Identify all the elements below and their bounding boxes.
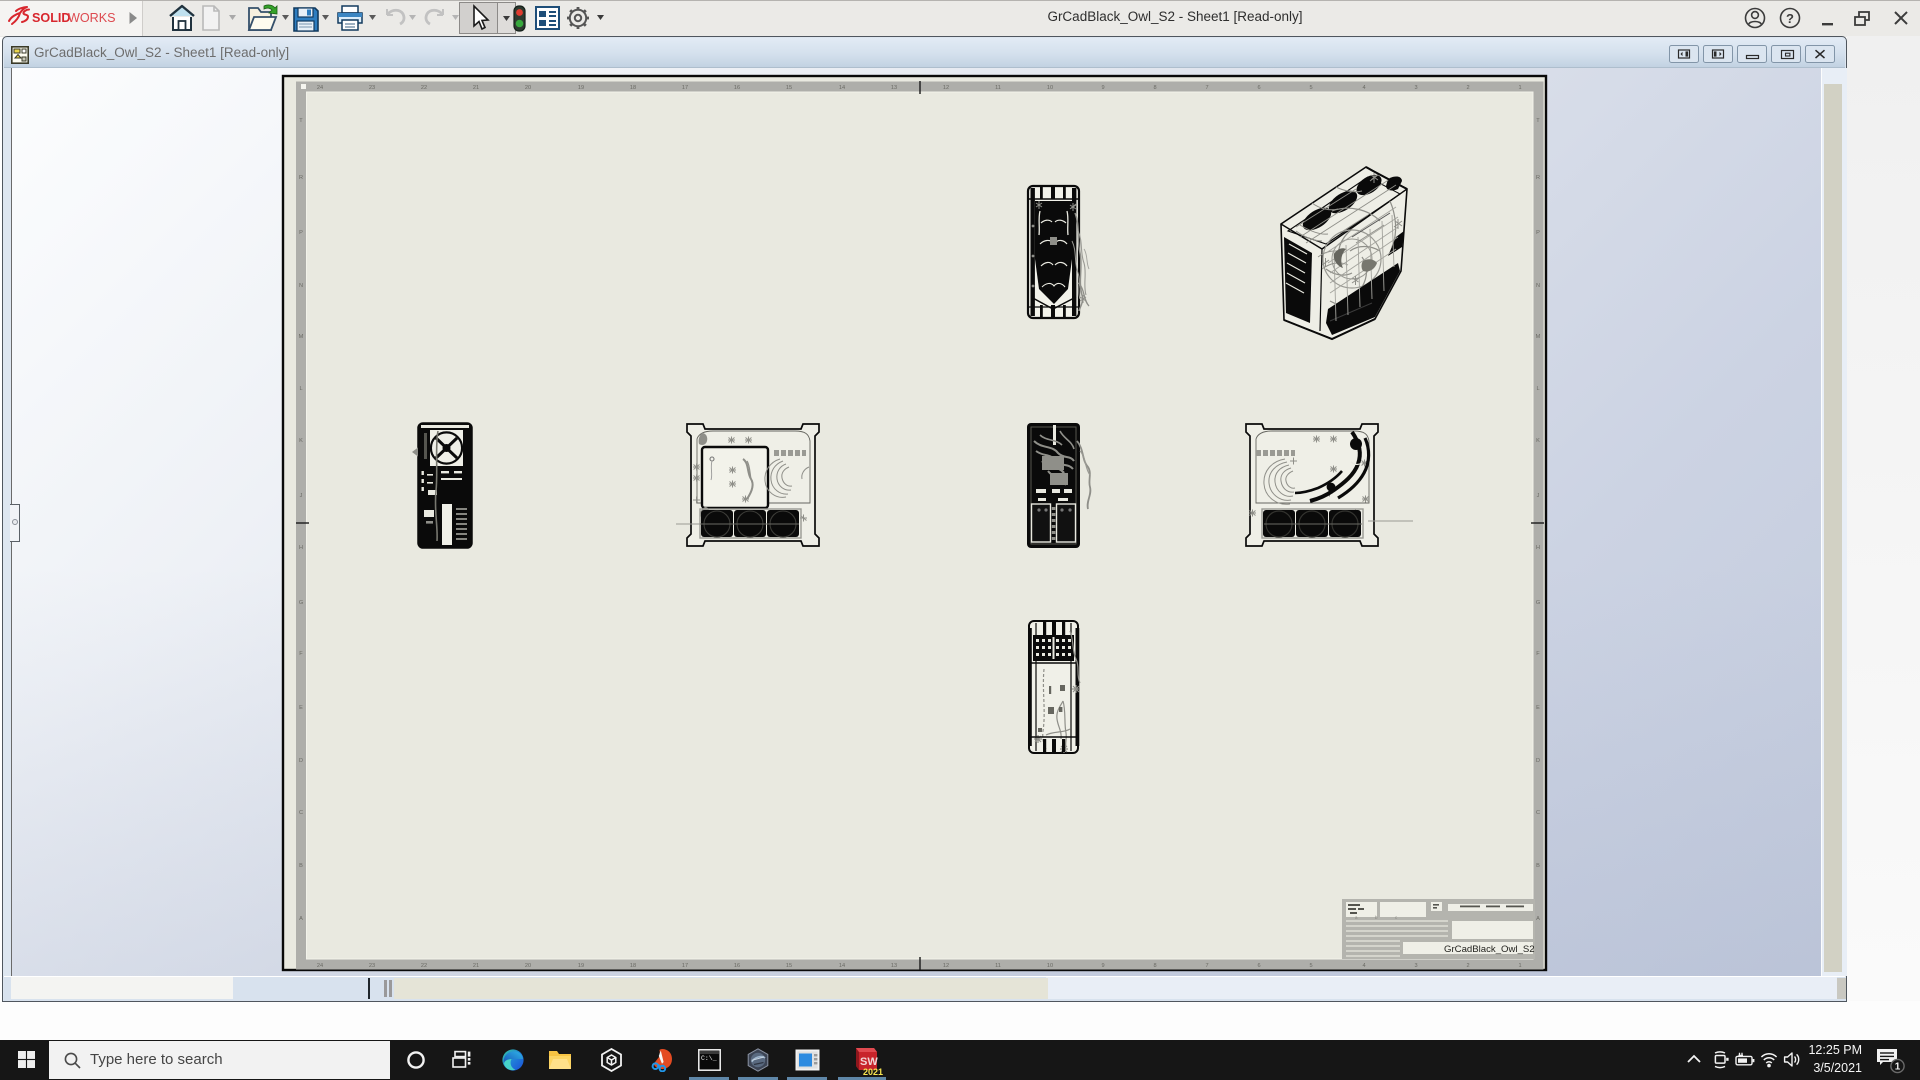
svg-text:16: 16 — [734, 963, 740, 969]
svg-text:10: 10 — [1047, 85, 1053, 91]
svg-text:6: 6 — [1257, 963, 1260, 969]
svg-text:21: 21 — [473, 963, 479, 969]
svg-text:24: 24 — [317, 85, 323, 91]
svg-text:13: 13 — [891, 85, 897, 91]
svg-text:16: 16 — [734, 85, 740, 91]
svg-text:E: E — [1536, 705, 1540, 711]
svg-text:WORKS: WORKS — [68, 11, 116, 25]
svg-text:K: K — [1536, 438, 1540, 444]
svg-text:19: 19 — [578, 963, 584, 969]
svg-text:M: M — [1536, 334, 1541, 340]
svg-text:SOLID: SOLID — [32, 11, 70, 25]
svg-text:2: 2 — [1466, 85, 1469, 91]
svg-text:N: N — [299, 283, 303, 289]
svg-text:17: 17 — [682, 963, 688, 969]
svg-text:R: R — [299, 175, 303, 181]
svg-text:4: 4 — [1362, 85, 1365, 91]
svg-text:11: 11 — [995, 85, 1001, 91]
svg-text:E: E — [299, 705, 303, 711]
svg-text:B: B — [1536, 863, 1540, 869]
svg-text:?: ? — [1786, 11, 1794, 26]
svg-text:B: B — [299, 863, 303, 869]
svg-text:14: 14 — [839, 85, 845, 91]
svg-text:9: 9 — [1101, 963, 1104, 969]
svg-text:18: 18 — [630, 85, 636, 91]
svg-text:D: D — [1536, 758, 1540, 764]
svg-text:M: M — [299, 334, 304, 340]
svg-text:7: 7 — [1205, 85, 1208, 91]
svg-text:GrCadBlack_Owl_S2: GrCadBlack_Owl_S2 — [1444, 944, 1535, 955]
svg-text:1: 1 — [1518, 85, 1521, 91]
svg-text:5: 5 — [1309, 85, 1312, 91]
svg-text:15: 15 — [786, 85, 792, 91]
svg-text:P: P — [299, 230, 303, 236]
svg-text:18: 18 — [630, 963, 636, 969]
svg-text:A: A — [1536, 916, 1540, 922]
svg-text:19: 19 — [578, 85, 584, 91]
svg-text:R: R — [1536, 175, 1540, 181]
svg-text:6: 6 — [1257, 85, 1260, 91]
svg-text:12: 12 — [943, 963, 949, 969]
svg-text:P: P — [1536, 230, 1540, 236]
svg-text:F: F — [1536, 651, 1540, 657]
svg-text:22: 22 — [421, 963, 427, 969]
svg-text:12: 12 — [943, 85, 949, 91]
svg-text:J: J — [300, 493, 303, 499]
svg-text:J: J — [1537, 493, 1540, 499]
svg-text:G: G — [299, 600, 303, 606]
svg-text:A: A — [299, 916, 303, 922]
svg-text:H: H — [299, 545, 303, 551]
svg-text:D: D — [299, 758, 303, 764]
svg-text:20: 20 — [525, 963, 531, 969]
svg-text:2: 2 — [1466, 963, 1469, 969]
svg-text:17: 17 — [682, 85, 688, 91]
svg-text:20: 20 — [525, 85, 531, 91]
svg-text:7: 7 — [1205, 963, 1208, 969]
svg-text:C:\_: C:\_ — [701, 1055, 717, 1062]
svg-text:F: F — [299, 651, 303, 657]
svg-text:23: 23 — [369, 85, 375, 91]
svg-text:G: G — [1536, 600, 1540, 606]
svg-text:8: 8 — [1153, 963, 1156, 969]
svg-text:21: 21 — [473, 85, 479, 91]
svg-text:11: 11 — [995, 963, 1001, 969]
svg-text:H: H — [1536, 545, 1540, 551]
svg-text:T: T — [1536, 118, 1540, 124]
svg-text:N: N — [1536, 283, 1540, 289]
svg-text:24: 24 — [317, 963, 323, 969]
svg-text:23: 23 — [369, 963, 375, 969]
svg-text:K: K — [299, 438, 303, 444]
svg-text:L: L — [1536, 386, 1539, 392]
svg-text:10: 10 — [1047, 963, 1053, 969]
svg-text:1: 1 — [1895, 1062, 1901, 1073]
svg-text:2021: 2021 — [863, 1067, 883, 1076]
svg-text:5: 5 — [1309, 963, 1312, 969]
svg-text:15: 15 — [786, 963, 792, 969]
svg-text:8: 8 — [1153, 85, 1156, 91]
svg-text:T: T — [299, 118, 303, 124]
svg-text:9: 9 — [1101, 85, 1104, 91]
svg-text:C: C — [299, 810, 303, 816]
svg-text:3: 3 — [1414, 85, 1417, 91]
svg-text:4: 4 — [1362, 963, 1365, 969]
svg-text:C: C — [1536, 810, 1540, 816]
svg-text:13: 13 — [891, 963, 897, 969]
svg-text:1: 1 — [1518, 963, 1521, 969]
svg-text:3: 3 — [1414, 963, 1417, 969]
svg-text:L: L — [299, 386, 302, 392]
svg-text:22: 22 — [421, 85, 427, 91]
svg-text:14: 14 — [839, 963, 845, 969]
